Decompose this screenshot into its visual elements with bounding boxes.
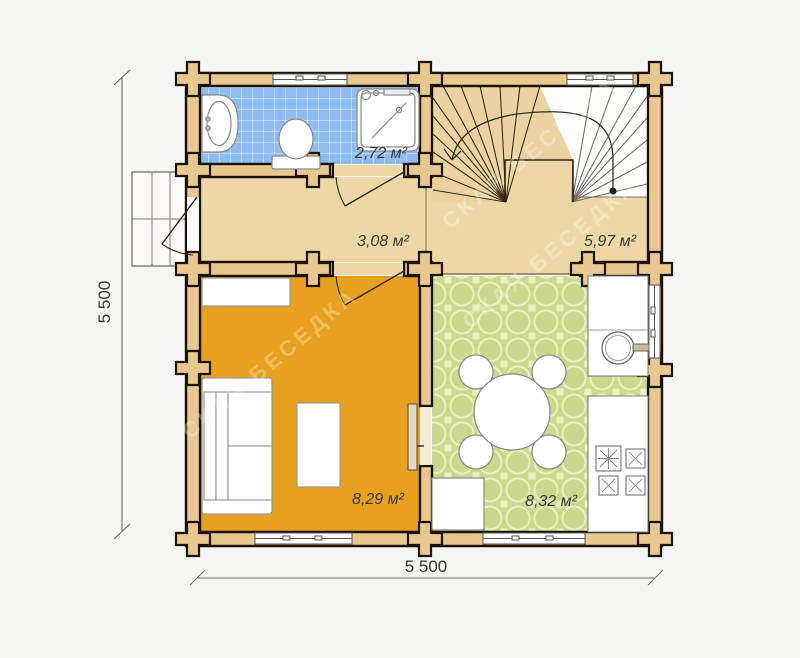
floor-plan: СКАЯ БЕСЕДКА СКАЯ БЕСЕДКА СКАЯ БЕСЕДКА 2… <box>0 0 800 658</box>
cabinet <box>202 278 290 306</box>
stair-hall-area-label: 5,97 м² <box>584 233 637 250</box>
window-bathroom <box>273 74 347 85</box>
window-kitchen-bottom <box>483 533 585 544</box>
kitchen-appliance <box>432 478 484 530</box>
window-living-bottom <box>255 533 352 544</box>
window-kitchen-right <box>649 285 660 358</box>
coffee-table <box>297 403 340 487</box>
bathroom-area-label: 2,72 м² <box>354 145 408 162</box>
shower-tray <box>357 89 419 151</box>
living-area-label: 8,29 м² <box>352 491 405 508</box>
bathroom-sink <box>202 95 238 152</box>
kitchen-area-label: 8,32 м² <box>525 493 578 510</box>
hallway-area-label: 3,08 м² <box>357 233 410 250</box>
left-dimension <box>114 70 130 539</box>
floor-plan-canvas: СКАЯ БЕСЕДКА СКАЯ БЕСЕДКА СКАЯ БЕСЕДКА 2… <box>0 0 800 658</box>
dining-table <box>474 374 550 450</box>
left-dimension-label: 5 500 <box>95 281 114 324</box>
bottom-dimension-label: 5 500 <box>405 557 448 576</box>
